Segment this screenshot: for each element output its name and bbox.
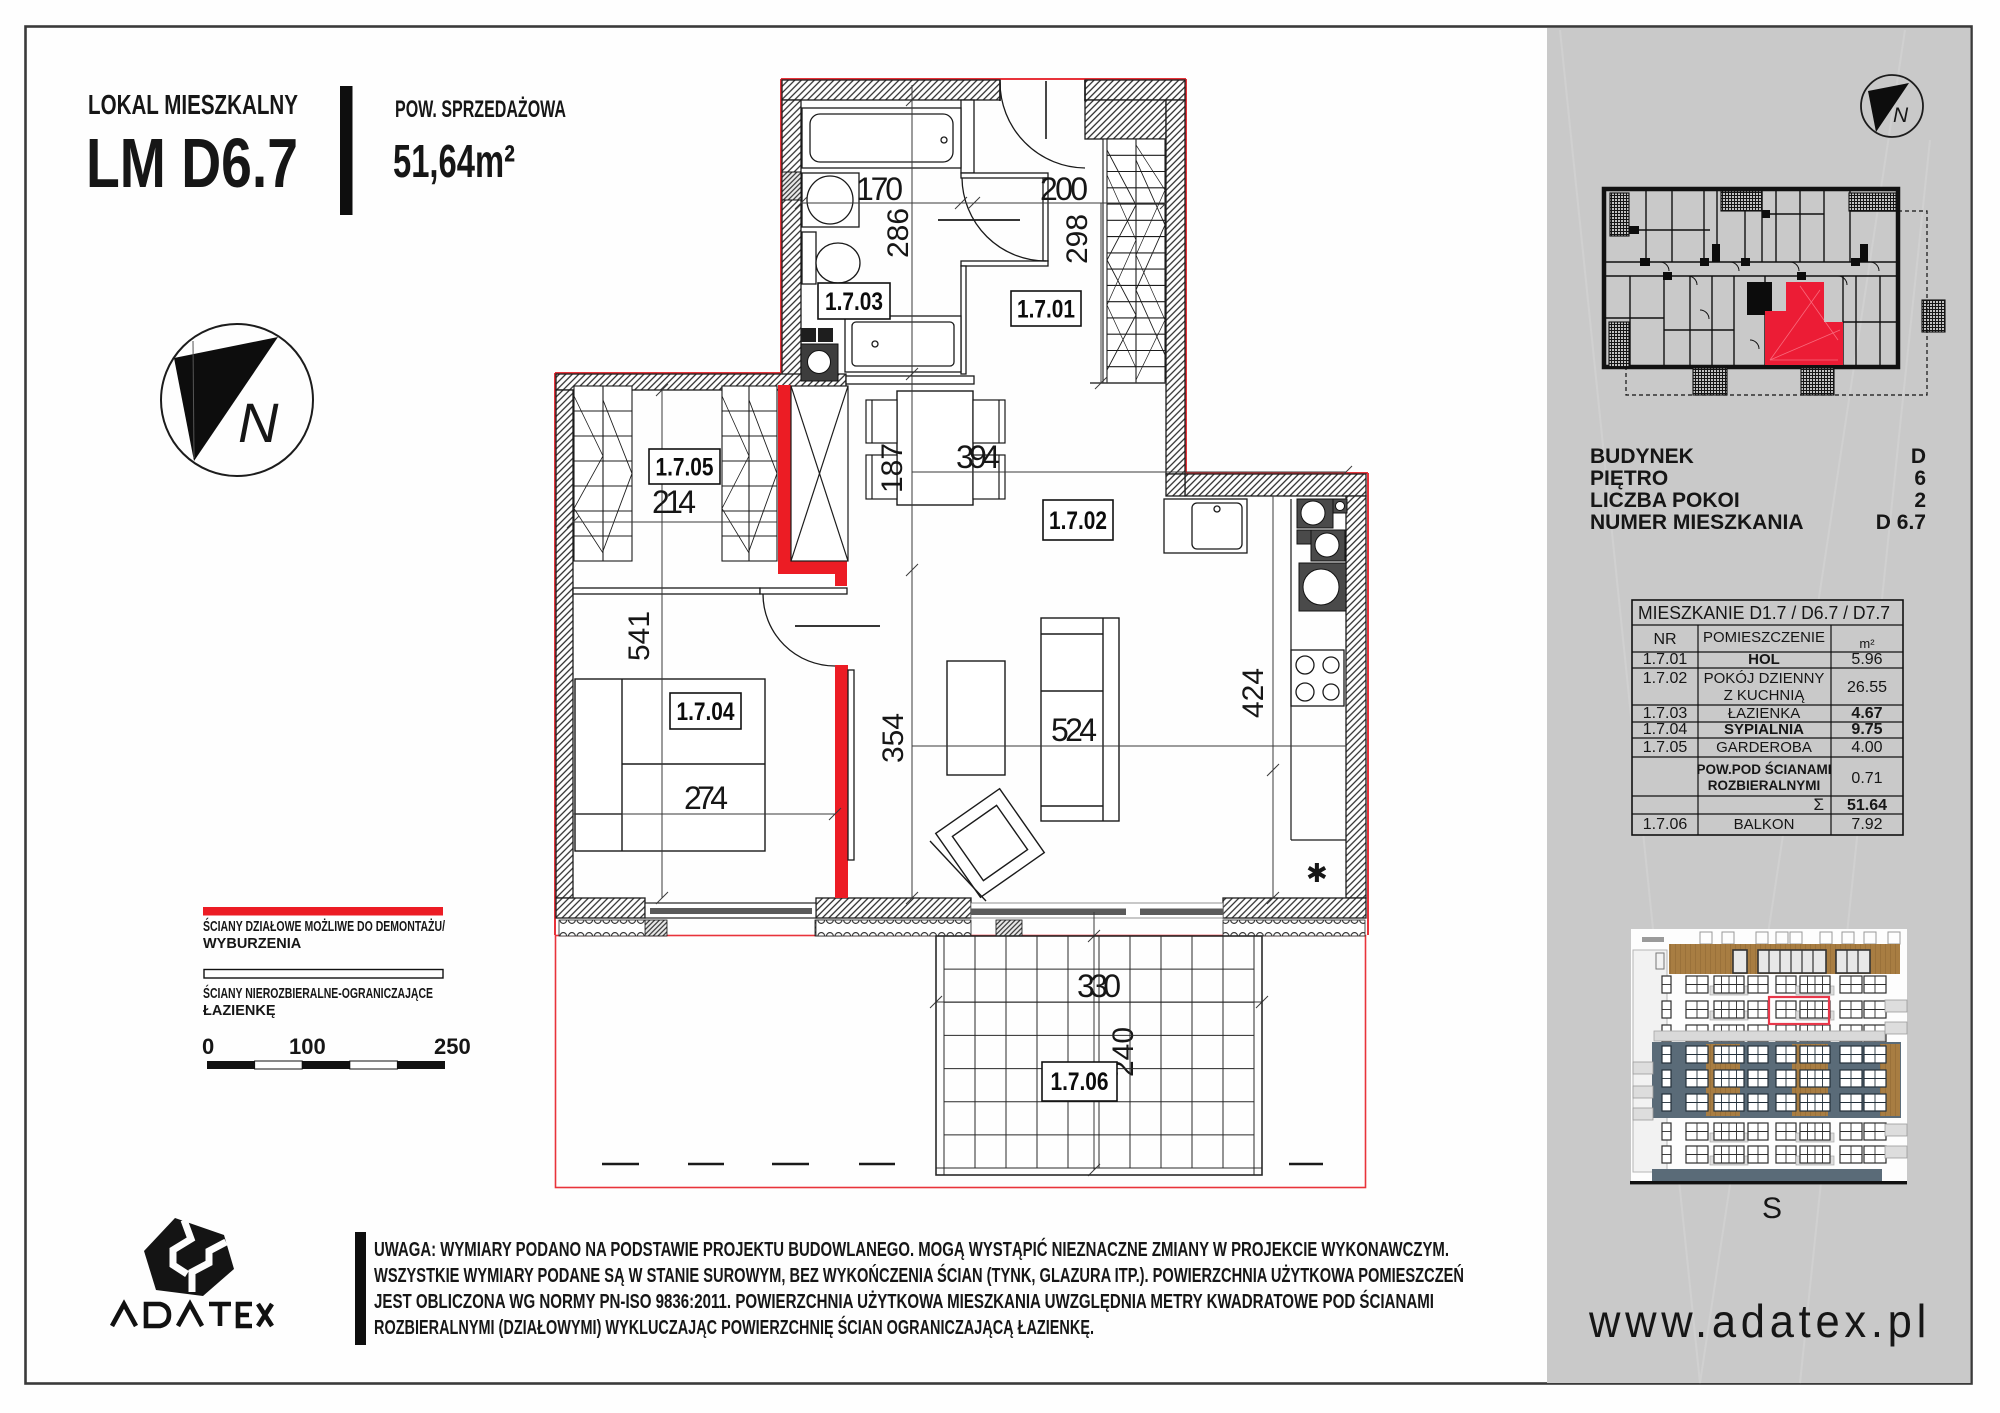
svg-text:0: 0 [202, 1034, 214, 1059]
svg-text:SYPIALNIA: SYPIALNIA [1724, 721, 1804, 738]
svg-text:D 6.7: D 6.7 [1876, 511, 1926, 534]
svg-text:N: N [238, 391, 279, 454]
svg-text:www.adatex.pl: www.adatex.pl [1588, 1295, 1931, 1347]
svg-text:51.64: 51.64 [1847, 797, 1887, 814]
svg-text:26.55: 26.55 [1847, 679, 1887, 696]
svg-text:541: 541 [623, 611, 656, 661]
svg-text:1.7.01: 1.7.01 [1643, 651, 1688, 668]
svg-text:214: 214 [652, 484, 696, 520]
svg-text:4.67: 4.67 [1851, 705, 1882, 722]
svg-text:ROZBIERALNYMI (DZIAŁOWYMI) WYK: ROZBIERALNYMI (DZIAŁOWYMI) WYKLUCZAJĄC P… [374, 1315, 1094, 1339]
svg-text:UWAGA: WYMIARY PODANO NA PODST: UWAGA: WYMIARY PODANO NA PODSTAWIE PROJE… [374, 1237, 1449, 1261]
svg-text:1.7.05: 1.7.05 [1643, 739, 1688, 756]
svg-text:POKÓJ DZIENNY: POKÓJ DZIENNY [1704, 670, 1825, 687]
svg-text:1.7.06: 1.7.06 [1051, 1068, 1109, 1096]
svg-text:ŁAZIENKĘ: ŁAZIENKĘ [203, 1003, 276, 1019]
svg-text:1.7.02: 1.7.02 [1643, 670, 1688, 687]
svg-text:424: 424 [1237, 668, 1270, 718]
svg-text:POW. SPRZEDAŻOWA: POW. SPRZEDAŻOWA [395, 96, 566, 123]
svg-text:MIESZKANIE D1.7 / D6.7 / D7.7: MIESZKANIE D1.7 / D6.7 / D7.7 [1638, 602, 1890, 623]
svg-text:N: N [1893, 104, 1909, 127]
svg-text:PIĘTRO: PIĘTRO [1590, 467, 1668, 490]
svg-text:5.96: 5.96 [1851, 651, 1882, 668]
svg-text:1.7.03: 1.7.03 [825, 288, 883, 316]
svg-text:1.7.05: 1.7.05 [656, 454, 714, 482]
svg-text:51,64m²: 51,64m² [393, 135, 515, 187]
svg-text:GARDEROBA: GARDEROBA [1716, 739, 1812, 756]
svg-text:BALKON: BALKON [1734, 816, 1795, 833]
svg-text:Z KUCHNIĄ: Z KUCHNIĄ [1724, 687, 1806, 704]
svg-text:6: 6 [1914, 467, 1926, 490]
svg-text:4.00: 4.00 [1851, 739, 1882, 756]
svg-text:POW.POD ŚCIANAMI: POW.POD ŚCIANAMI [1696, 762, 1831, 777]
svg-text:200: 200 [1040, 171, 1088, 207]
svg-text:✱: ✱ [1306, 858, 1328, 888]
svg-text:1.7.04: 1.7.04 [1643, 721, 1688, 738]
svg-text:ŚCIANY DZIAŁOWE MOŻLIWE DO DEM: ŚCIANY DZIAŁOWE MOŻLIWE DO DEMONTAŻU/ [203, 917, 445, 935]
svg-text:Σ: Σ [1813, 795, 1824, 814]
svg-text:2: 2 [1914, 489, 1926, 512]
svg-text:1.7.04: 1.7.04 [677, 698, 735, 726]
svg-text:POMIESZCZENIE: POMIESZCZENIE [1703, 629, 1825, 646]
svg-text:1.7.03: 1.7.03 [1643, 705, 1688, 722]
svg-text:250: 250 [434, 1034, 471, 1059]
svg-text:394: 394 [956, 439, 1000, 475]
svg-text:0.71: 0.71 [1851, 770, 1882, 787]
svg-text:187: 187 [876, 443, 909, 493]
svg-text:7.92: 7.92 [1851, 816, 1882, 833]
svg-text:m²: m² [1859, 636, 1875, 651]
svg-text:524: 524 [1051, 712, 1097, 748]
svg-text:WYBURZENIA: WYBURZENIA [203, 936, 302, 952]
svg-text:LM D6.7: LM D6.7 [86, 124, 298, 202]
svg-text:NR: NR [1653, 631, 1676, 648]
svg-text:S: S [1762, 1192, 1782, 1225]
svg-text:9.75: 9.75 [1851, 721, 1882, 738]
svg-text:170: 170 [856, 171, 903, 207]
svg-text:ROZBIERALNYMI: ROZBIERALNYMI [1708, 778, 1821, 793]
svg-text:100: 100 [289, 1034, 326, 1059]
svg-text:LICZBA POKOI: LICZBA POKOI [1590, 489, 1740, 512]
svg-text:WSZYSTKIE WYMIARY PODANE SĄ W: WSZYSTKIE WYMIARY PODANE SĄ W STANIE SUR… [374, 1263, 1464, 1287]
svg-text:JEST OBLICZONA WG NORMY PN-ISO: JEST OBLICZONA WG NORMY PN-ISO 9836:2011… [374, 1289, 1434, 1313]
svg-text:D: D [1911, 445, 1926, 468]
svg-text:NUMER MIESZKANIA: NUMER MIESZKANIA [1590, 511, 1804, 534]
svg-text:274: 274 [684, 780, 728, 816]
svg-text:BUDYNEK: BUDYNEK [1590, 445, 1694, 468]
svg-text:1.7.06: 1.7.06 [1643, 816, 1688, 833]
svg-text:ŚCIANY NIEROZBIERALNE-OGRANICZ: ŚCIANY NIEROZBIERALNE-OGRANICZAJĄCE [203, 984, 433, 1002]
svg-text:LOKAL MIESZKALNY: LOKAL MIESZKALNY [88, 89, 298, 120]
svg-text:1.7.01: 1.7.01 [1017, 296, 1075, 324]
svg-text:354: 354 [877, 713, 910, 763]
svg-text:1.7.02: 1.7.02 [1049, 507, 1107, 535]
svg-text:286: 286 [882, 208, 915, 258]
svg-text:ŁAZIENKA: ŁAZIENKA [1728, 705, 1801, 722]
svg-text:HOL: HOL [1748, 651, 1780, 668]
svg-text:298: 298 [1061, 214, 1094, 264]
